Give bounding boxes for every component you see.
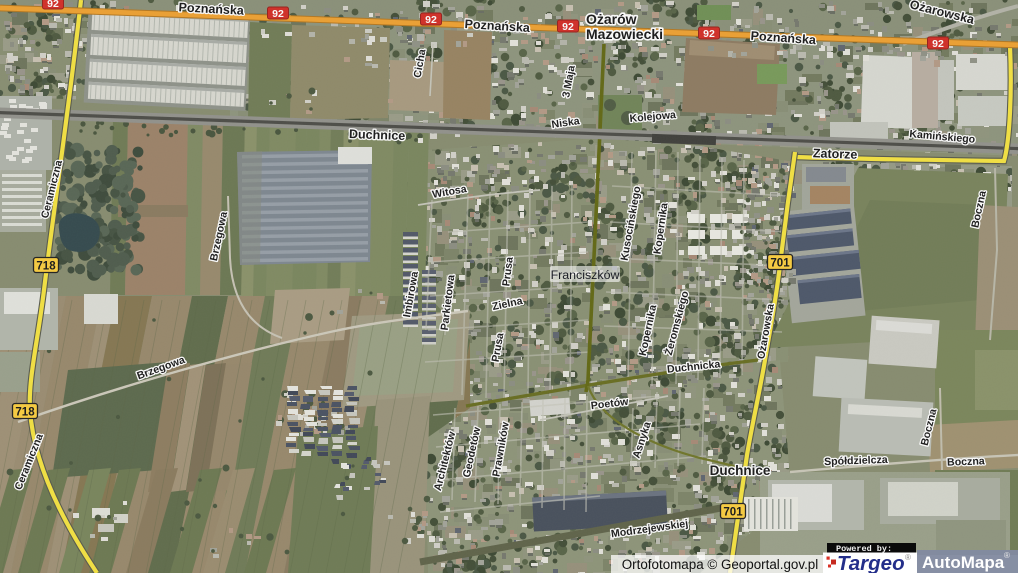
svg-text:Ortofotomapa © Geoportal.gov.p: Ortofotomapa © Geoportal.gov.pl — [622, 557, 818, 572]
svg-text:®: ® — [1004, 551, 1010, 560]
svg-text:®: ® — [905, 553, 911, 562]
svg-text:AutoMapa: AutoMapa — [922, 553, 1005, 572]
svg-text:Targeo: Targeo — [837, 552, 905, 573]
